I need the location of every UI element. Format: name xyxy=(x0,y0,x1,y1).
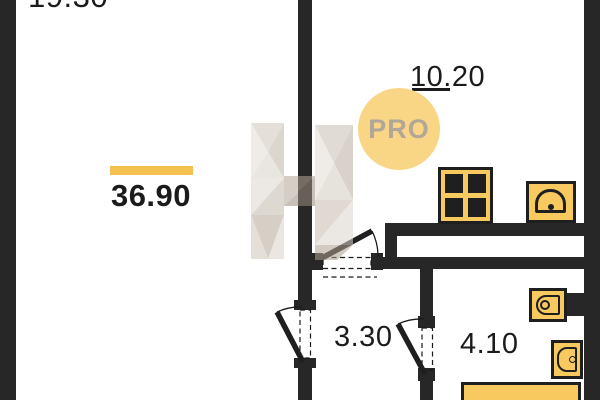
kitchen-door-jamb-right xyxy=(371,253,383,270)
wall-bathroom-divider-lower xyxy=(420,379,433,400)
total-area-label: 36.90 xyxy=(106,180,196,211)
bathroom-area-label: 4.10 xyxy=(460,330,518,359)
kitchen-door-opening-dashes xyxy=(323,258,371,269)
living-door-jamb-top xyxy=(294,300,316,310)
bathroom-door-jamb-top xyxy=(418,316,435,328)
pro-watermark-text: PRO xyxy=(368,114,430,145)
kitchen-sink-drain xyxy=(548,204,554,210)
kitchen-sink-basin xyxy=(535,189,566,213)
wall-living-divider-lower xyxy=(298,366,312,400)
outer-wall-left xyxy=(0,0,16,400)
toilet-drain xyxy=(569,356,576,363)
stove-burners xyxy=(445,174,486,217)
washbasin-wall-stub xyxy=(566,293,584,316)
bathtub-icon xyxy=(461,382,581,400)
pro-watermark-badge: PRO xyxy=(358,88,440,170)
kitchen-area-underline xyxy=(412,88,450,91)
kitchen-sink-icon xyxy=(526,181,576,223)
kitchen-counter-wall xyxy=(385,223,584,236)
total-area-accent-bar xyxy=(110,166,193,175)
bathroom-door-opening-dashes xyxy=(422,328,433,370)
stove-icon xyxy=(438,167,493,224)
washbasin-drain xyxy=(540,300,550,310)
wall-bathroom-divider-upper xyxy=(420,269,433,316)
living-door-opening-dashes xyxy=(300,310,311,358)
wall-kitchen-divider xyxy=(383,257,584,269)
kitchen-door-leaf xyxy=(322,231,372,258)
hallway-area-label: 3.30 xyxy=(334,323,392,352)
living-door-leaf xyxy=(277,312,303,362)
outer-wall-right xyxy=(584,0,600,400)
living-room-area-label: 19.30 xyxy=(28,0,108,12)
floor-plan: 19.30 36.90 10.20 3.30 4.10 xyxy=(0,0,600,400)
bathroom-door-leaf xyxy=(398,324,425,374)
wall-living-divider-upper xyxy=(298,0,312,300)
washbasin-icon xyxy=(529,288,567,322)
kitchen-door-jamb-left xyxy=(311,253,323,270)
toilet-icon xyxy=(551,340,583,379)
kitchen-counter-connector xyxy=(385,223,397,269)
